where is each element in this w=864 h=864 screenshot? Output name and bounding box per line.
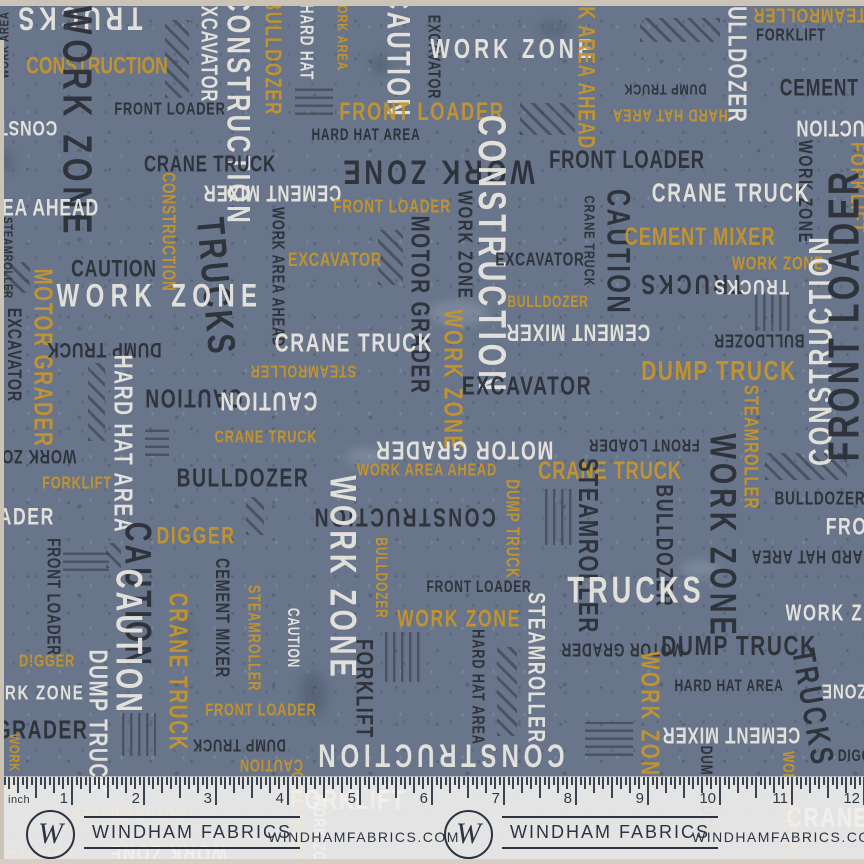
hazard-stripes-mark (88, 363, 105, 441)
ruler-tick (220, 777, 222, 785)
ruler-tick (832, 777, 834, 785)
ruler-tick (242, 777, 244, 789)
ruler-tick (836, 777, 838, 789)
ruler-tick (143, 777, 145, 805)
fabric-pattern: TRUCKSWORK AREACONSTRUCTIONWORK ZONEEXCA… (0, 0, 864, 864)
fabric-word: CEMENT MIXER (780, 74, 864, 102)
ruler-tick (472, 777, 474, 785)
ruler-tick (229, 777, 231, 785)
fabric-word: CEMENT MIXER (662, 721, 800, 747)
ruler-tick (809, 777, 811, 793)
ruler-tick (616, 777, 618, 785)
ruler-tick (202, 777, 204, 785)
ruler-tick (296, 777, 298, 789)
ruler-tick (76, 777, 78, 785)
fabric-word: CRANE TRUCK (581, 196, 598, 287)
ruler-tick (688, 777, 690, 785)
ruler-tick (800, 777, 802, 789)
ruler-tick (215, 777, 217, 805)
ruler-tick (503, 777, 505, 805)
ruler-tick (256, 777, 258, 785)
ruler-tick (139, 777, 141, 785)
ruler-tick (193, 777, 195, 785)
ruler-tick (404, 777, 406, 789)
ruler-tick (350, 777, 352, 789)
ruler-tick (359, 777, 361, 805)
fabric-word: BULLDOZER (713, 329, 804, 351)
ruler-tick (175, 777, 177, 785)
ruler-tick (445, 777, 447, 785)
fabric-word: CRANE TRUCK (652, 179, 810, 209)
fabric-word: BULLDOZER (507, 293, 588, 311)
fabric-word: FRONT LOADER (821, 169, 864, 462)
ruler-tick (22, 777, 24, 785)
ruler-tick (463, 777, 465, 785)
ruler-tick (206, 777, 208, 789)
ruler-tick (553, 777, 555, 785)
ruler-tick (278, 777, 280, 789)
ruler-tick (337, 777, 339, 785)
ruler-tick (724, 777, 726, 785)
ruler-tick (274, 777, 276, 785)
ruler-tick (850, 777, 852, 785)
windham-site-text-2: WINDHAMFABRICS.COM (692, 829, 864, 845)
ruler-tick (170, 777, 172, 789)
fabric-word: DUMP TRUCK (192, 734, 286, 753)
ruler-inch-number: 10 (688, 790, 716, 807)
ruler-tick (287, 777, 289, 805)
fabric-word: FRONT LOADER (333, 196, 451, 218)
ruler-tick (611, 777, 613, 798)
ruler-strip: inch 123456789101112 W WINDHAM FABRICS W… (0, 776, 864, 864)
fabric-word: MOTOR GRADER (404, 216, 434, 395)
ruler-tick (791, 777, 793, 805)
fabric-word: WORK ZONE (452, 191, 476, 300)
ruler-tick (620, 777, 622, 789)
fabric-word: STEAMROLLER (250, 360, 356, 379)
hazard-stripes-mark (122, 713, 156, 756)
ruler-tick (638, 777, 640, 789)
ruler-tick (814, 777, 816, 785)
ruler-tick (431, 777, 433, 805)
ruler-tick (602, 777, 604, 789)
ruler-tick (265, 777, 267, 785)
hazard-stripes-mark (295, 85, 333, 115)
hazard-stripes-mark (497, 647, 517, 736)
ruler-tick (584, 777, 586, 789)
fabric-word: WORK ZONE (0, 682, 84, 706)
ruler-tick (364, 777, 366, 785)
fabric-word: CRANE TRUCK (162, 593, 192, 751)
ruler-tick (328, 777, 330, 785)
fabric-edge-left (0, 40, 4, 864)
ruler-tick (643, 777, 645, 785)
ruler-tick (314, 777, 316, 789)
ruler-inch-number: 12 (832, 790, 860, 807)
ruler-tick (665, 777, 667, 793)
ruler-tick (755, 777, 757, 798)
ruler-tick (670, 777, 672, 785)
ruler-inch-number: 2 (112, 790, 140, 807)
fabric-word: WORK AREA AHEAD (267, 207, 286, 347)
ruler-tick (112, 777, 114, 785)
ruler-inch-number: 9 (616, 790, 644, 807)
ruler-tick (539, 777, 541, 798)
ruler-tick (476, 777, 478, 789)
windham-monogram-icon: W (38, 819, 63, 849)
ruler-tick (121, 777, 123, 785)
ruler-tick (395, 777, 397, 798)
fabric-word: CAUTION (599, 189, 636, 315)
ruler-tick (85, 777, 87, 785)
ruler-tick (827, 777, 829, 798)
ruler-tick (26, 777, 28, 789)
ruler-tick (224, 777, 226, 789)
fabric-edge-bottom (0, 859, 864, 864)
ruler-tick (233, 777, 235, 793)
ruler-tick (368, 777, 370, 789)
ruler-tick (260, 777, 262, 789)
fabric-word: WORK ZONE (786, 601, 864, 627)
ruler-tick (44, 777, 46, 789)
ruler-tick (62, 777, 64, 789)
ruler-tick (598, 777, 600, 785)
ruler-tick (98, 777, 100, 789)
ruler-tick (796, 777, 798, 785)
fabric-word: WORK ZONE (57, 279, 264, 316)
fabric-word: CAUTION (219, 385, 318, 415)
ruler-inch-number: 1 (40, 790, 68, 807)
ruler-tick (679, 777, 681, 785)
ruler-tick (17, 777, 19, 793)
fabric-word: DUMP TRUCK (82, 650, 112, 795)
ruler-tick (562, 777, 564, 785)
ruler-inch-number: 7 (472, 790, 500, 807)
fabric-word: DUMP TRUCK (46, 337, 161, 362)
hazard-stripes-mark (640, 18, 720, 42)
fabric-word: TRUCKS (567, 570, 704, 612)
fabric-word: FRONT LOADER (205, 701, 316, 720)
ruler-tick (719, 777, 721, 805)
fabric-word: BULLDOZER (259, 0, 285, 116)
ruler-tick (728, 777, 730, 789)
fabric-word: WORK AREA AHEAD (572, 0, 600, 149)
hazard-stripes-mark (520, 103, 575, 135)
ruler-tick (400, 777, 402, 785)
ruler-tick (566, 777, 568, 789)
ruler-tick (661, 777, 663, 785)
fabric-word: DUMP TRUCK (641, 354, 796, 387)
fabric-word: CONSTRUCTION (796, 114, 864, 140)
fabric-word: HARD HAT AREA (311, 126, 420, 144)
ruler-tick (427, 777, 429, 785)
fabric-word: FRONT LOADER (588, 434, 699, 453)
ruler-tick (517, 777, 519, 785)
fabric-word: FORKLIFT (756, 26, 826, 45)
ruler-inch-number: 6 (400, 790, 428, 807)
fabric-swatch-photo: TRUCKSWORK AREACONSTRUCTIONWORK ZONEEXCA… (0, 0, 864, 864)
ruler-tick (436, 777, 438, 785)
ruler-tick (134, 777, 136, 789)
ruler-tick (49, 777, 51, 785)
fabric-word: CEMENT MIXER (625, 222, 776, 251)
fabric-word: HARD HAT (295, 4, 317, 80)
ruler-tick (454, 777, 456, 785)
ruler-tick (355, 777, 357, 785)
fabric-word: WORK ZONE (397, 605, 521, 633)
ruler-tick (634, 777, 636, 785)
ruler-tick (238, 777, 240, 785)
fabric-word: CEMENT MIXER (506, 318, 651, 346)
fabric-word: FRONT LOADER (427, 578, 532, 596)
ruler-tick (683, 777, 685, 798)
ruler-tick (787, 777, 789, 785)
ruler-tick (580, 777, 582, 785)
ruler-tick (449, 777, 451, 793)
ruler-tick (130, 777, 132, 785)
ruler-tick (382, 777, 384, 785)
ruler-tick (715, 777, 717, 785)
ruler-tick (710, 777, 712, 789)
fabric-word: WORK ZONE (701, 433, 743, 638)
ruler-tick (391, 777, 393, 785)
fabric-word: EXCAVATOR (462, 372, 592, 402)
ruler-tick (409, 777, 411, 785)
ruler-tick (40, 777, 42, 785)
ruler-tick (494, 777, 496, 789)
fabric-word: BULLDOZER (372, 537, 390, 618)
ruler-tick (548, 777, 550, 789)
windham-monogram-icon: W (456, 819, 481, 849)
fabric-word: DIGGER (838, 747, 864, 765)
hazard-stripes-mark (165, 20, 189, 98)
ruler-tick (841, 777, 843, 785)
ruler-tick (571, 777, 573, 785)
ruler-tick (854, 777, 856, 789)
ruler-tick (458, 777, 460, 789)
ruler-tick (490, 777, 492, 785)
ruler-tick (292, 777, 294, 785)
ruler-tick (526, 777, 528, 785)
fabric-word: WORK ZONE (634, 651, 664, 792)
fabric-word: EXCAVATOR (495, 249, 584, 271)
ruler-tick (422, 777, 424, 789)
fabric-word: CONSTRUCTION (0, 115, 57, 140)
fabric-word: CONSTRUCTION (314, 736, 565, 773)
windham-logo-circle-1: W (26, 810, 75, 859)
ruler-tick (283, 777, 285, 785)
fabric-word: EXCAVATOR (288, 249, 382, 272)
ruler-tick (148, 777, 150, 785)
ruler-tick (692, 777, 694, 789)
fabric-word: CEMENT MIXER (211, 558, 234, 678)
ruler-tick (103, 777, 105, 785)
ruler-tick (521, 777, 523, 793)
fabric-word: BULLDOZER (774, 488, 864, 510)
ruler-tick (94, 777, 96, 785)
fabric-word: HARD HAT AREA (674, 677, 783, 695)
ruler-tick (8, 777, 10, 789)
fabric-word: CAUTION (107, 569, 149, 715)
ruler-tick (575, 777, 577, 805)
ruler-inch-number: 3 (184, 790, 212, 807)
ruler-tick (481, 777, 483, 785)
ruler-inch-number: 8 (544, 790, 572, 807)
ruler-tick (764, 777, 766, 789)
ruler-inch-number: 5 (328, 790, 356, 807)
hazard-stripes-mark (545, 489, 573, 545)
ruler-unit-label: inch (8, 794, 30, 806)
hazard-stripes-mark (145, 424, 169, 456)
fabric-word: CRANE TRUCK (275, 329, 433, 359)
ruler-tick (89, 777, 91, 793)
fabric-word: CRANE TRUCK (215, 428, 318, 447)
fabric-word: DIGGER (156, 522, 235, 550)
ruler-tick (440, 777, 442, 789)
hazard-stripes-mark (385, 632, 423, 682)
hazard-stripes-mark (585, 722, 633, 756)
fabric-word: CRANE TRUCK (538, 456, 682, 485)
ruler-tick (305, 777, 307, 793)
fabric-word: WORK AREA (334, 0, 351, 71)
fabric-word: FORKLIFT (350, 639, 378, 739)
ruler-tick (697, 777, 699, 785)
fabric-word: WORK ZONE (430, 32, 595, 65)
ruler-tick (535, 777, 537, 785)
ruler-tick (742, 777, 744, 785)
ruler-tick (674, 777, 676, 789)
ruler-tick (706, 777, 708, 785)
ruler-tick (161, 777, 163, 793)
fabric-word: FORKLIFT (42, 474, 112, 493)
fabric-word: GRADER (0, 503, 55, 531)
fabric-word: DUMP TRUCK (501, 479, 523, 578)
ruler-tick (746, 777, 748, 789)
ruler-tick (301, 777, 303, 785)
fabric-word: WORK AREA AHEAD (357, 461, 497, 480)
ruler-tick (80, 777, 82, 789)
ruler-tick (737, 777, 739, 793)
ruler-tick (625, 777, 627, 785)
windham-logo-circle-2: W (444, 810, 493, 859)
fabric-word: HARD HAT AREA (751, 545, 864, 567)
ruler-tick (499, 777, 501, 785)
fabric-word: FRONT LOADER (114, 100, 225, 119)
ruler-tick (58, 777, 60, 785)
ruler-tick (530, 777, 532, 789)
ruler-tick (247, 777, 249, 785)
fabric-word: WORK ZONE (0, 445, 76, 468)
ruler-tick (188, 777, 190, 789)
ruler-tick (346, 777, 348, 785)
fabric-edge-top (0, 0, 864, 6)
ruler-tick (67, 777, 69, 785)
fabric-word: STEAMROLLER (522, 592, 550, 744)
ruler-tick (35, 777, 37, 798)
ruler-tick (647, 777, 649, 805)
fabric-word: DUMP TRUCK (623, 81, 706, 98)
fabric-word: CEMENT MIXER (203, 179, 341, 205)
ruler-tick (157, 777, 159, 785)
ruler-inch-number: 4 (256, 790, 284, 807)
fabric-word: EXCAVATOR (195, 0, 221, 102)
ruler-tick (652, 777, 654, 785)
ruler-tick (607, 777, 609, 785)
ruler-inch-number: 11 (760, 790, 788, 807)
ruler-tick (656, 777, 658, 789)
fabric-word: CONSTRUCTION (157, 172, 179, 291)
ruler-tick (31, 777, 33, 785)
ruler-tick (184, 777, 186, 785)
ruler-tick (818, 777, 820, 789)
ruler-tick (760, 777, 762, 785)
ruler-tick (823, 777, 825, 785)
fabric-word: HARD HAT AREA (467, 629, 486, 745)
ruler-tick (805, 777, 807, 785)
ruler-tick (332, 777, 334, 789)
ruler-tick (377, 777, 379, 793)
ruler-tick (508, 777, 510, 785)
fabric-word: MOTOR GRADER (375, 434, 554, 464)
ruler-tick (782, 777, 784, 789)
ruler-tick (778, 777, 780, 785)
fabric-word: HARD HAT AREA (107, 355, 137, 534)
ruler-tick (467, 777, 469, 798)
ruler-tick (251, 777, 253, 798)
ruler-tick (386, 777, 388, 789)
ruler-tick (116, 777, 118, 789)
fabric-word: D!GGER (19, 652, 75, 671)
ruler-tick (166, 777, 168, 785)
fabric-word: BULLDOZER (177, 464, 310, 494)
fabric-word: TRUCKS (713, 274, 789, 299)
hazard-stripes-mark (246, 497, 264, 535)
fabric-word: WORK ZONE (821, 678, 864, 702)
fabric-word: EXCAVATOR (3, 308, 26, 402)
ruler-tick (593, 777, 595, 793)
fabric-word: CAUTION (284, 608, 302, 668)
ruler-tick (310, 777, 312, 785)
ruler-tick (319, 777, 321, 785)
ruler-tick (512, 777, 514, 789)
ruler-tick (71, 777, 73, 805)
ruler-tick (751, 777, 753, 785)
ruler-tick (179, 777, 181, 798)
ruler-tick (13, 777, 15, 785)
ruler-tick (418, 777, 420, 785)
fabric-word: FRONT (826, 513, 864, 541)
fabric-word: HARD HAT AREA (612, 104, 728, 123)
hazard-stripes-mark (63, 552, 109, 571)
ruler-tick (323, 777, 325, 798)
ruler-tick (733, 777, 735, 785)
ruler-tick (769, 777, 771, 785)
ruler-tick (859, 777, 861, 785)
ruler-tick (544, 777, 546, 785)
ruler-tick (107, 777, 109, 798)
fabric-word: FRONT LOADER (42, 538, 64, 656)
windham-brand-name-2: WINDHAM FABRICS (502, 816, 718, 849)
ruler-tick (373, 777, 375, 785)
ruler-tick (211, 777, 213, 785)
ruler-tick (589, 777, 591, 785)
fabric-word: STEAMROLLER (243, 585, 262, 691)
ruler-tick (152, 777, 154, 789)
fabric-word: FRONT LOADER (549, 145, 705, 174)
windham-site-text-1: WINDHAMFABRICS.COM (268, 829, 460, 845)
